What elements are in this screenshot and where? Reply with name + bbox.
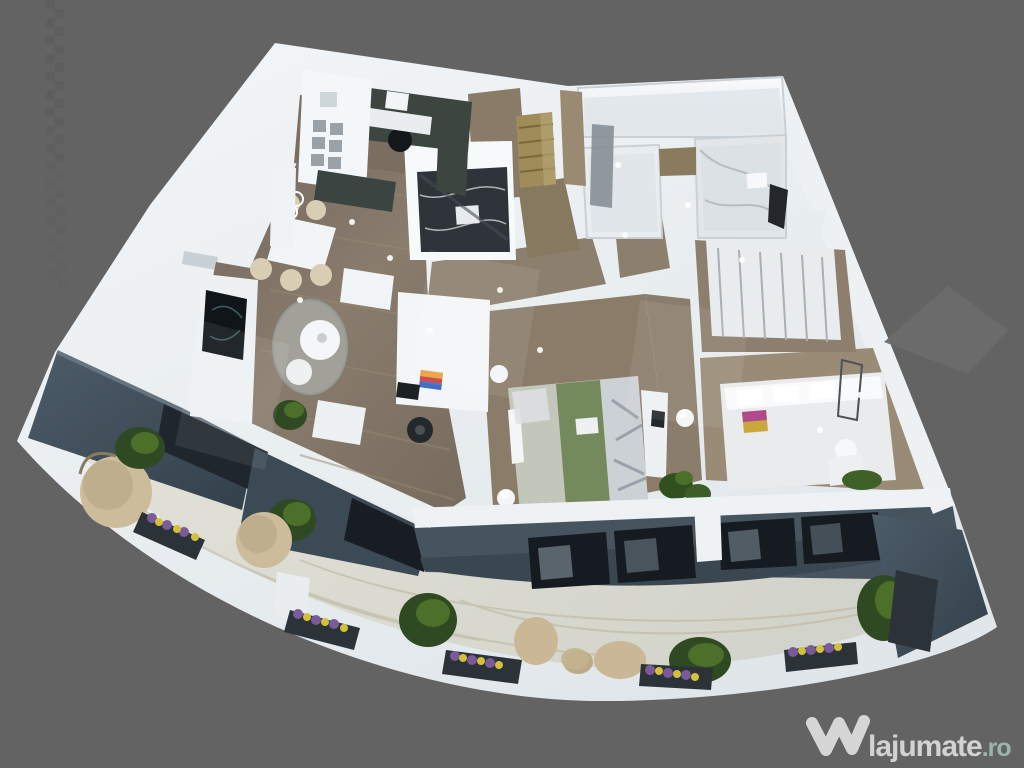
svg-text:lajumate.ro: lajumate.ro — [868, 730, 1011, 763]
